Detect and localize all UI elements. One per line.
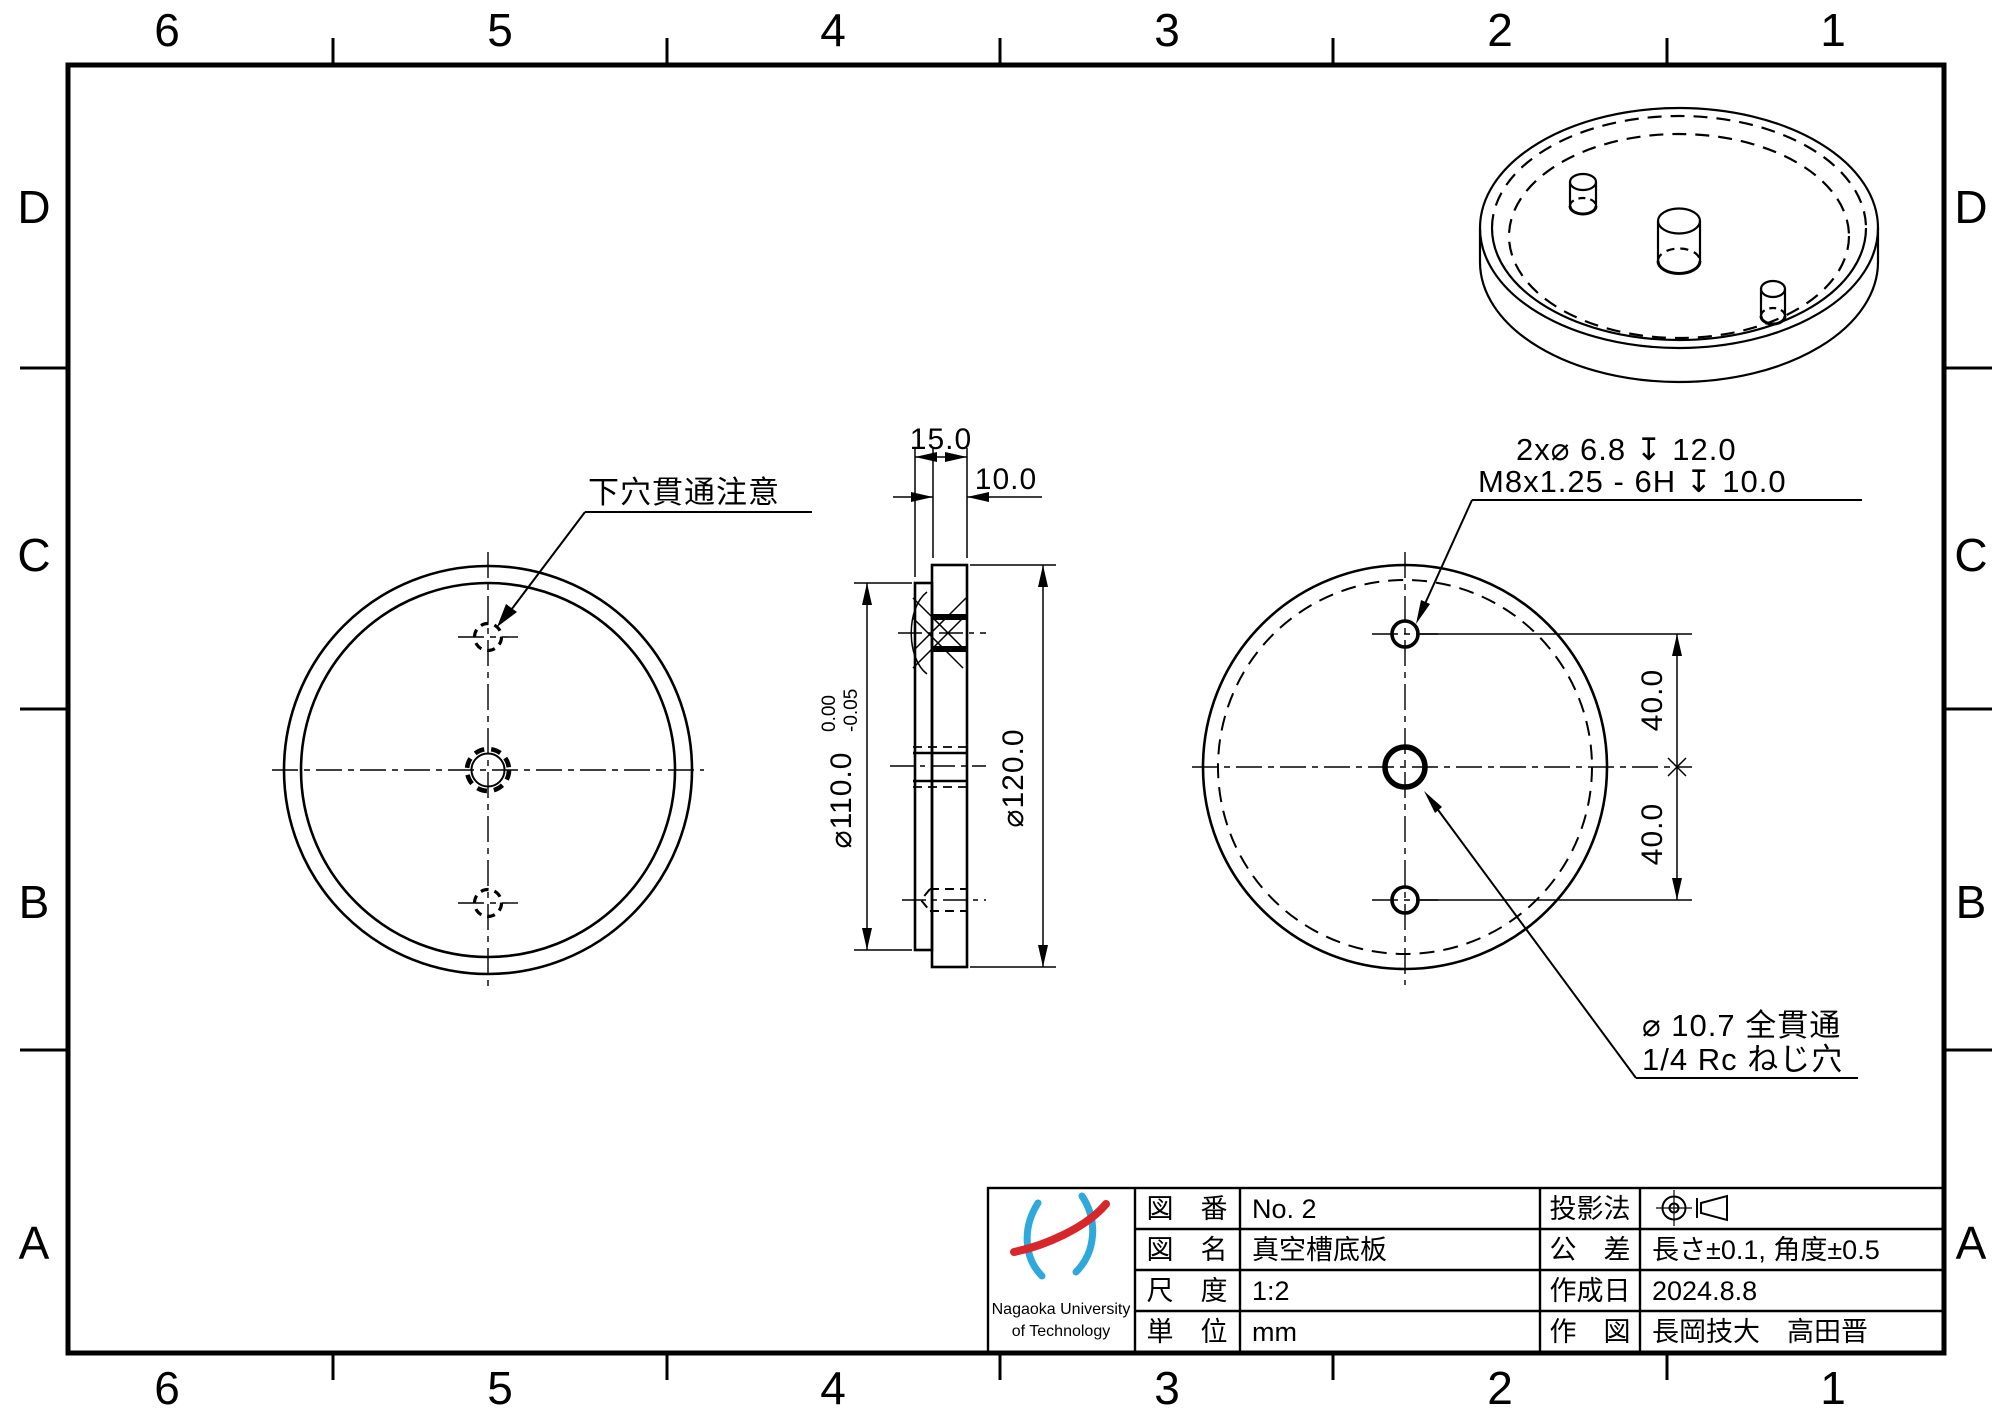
dim-plate-thickness: 10.0 [975, 463, 1037, 496]
date-value: 2024.8.8 [1652, 1276, 1757, 1306]
dim-total-thickness: 15.0 [910, 423, 972, 456]
tapped-hole-note-line2: M8x1.25 - 6H ↧ 10.0 [1478, 464, 1787, 499]
projection-symbol [1656, 1190, 1727, 1226]
right-view [1192, 500, 1862, 1078]
centerlines [1192, 552, 1692, 985]
zone-col-top: 5 [487, 4, 513, 56]
zone-col-top: 2 [1487, 4, 1513, 56]
iso-bottom-edge [1480, 262, 1878, 382]
logo-blue-stroke-left [1027, 1203, 1042, 1276]
drawing-name-value: 真空槽底板 [1252, 1235, 1387, 1265]
leader-arrowhead [1416, 600, 1430, 624]
dim-boss-dia: ⌀110.0 [825, 752, 858, 849]
tolerance-label: 公 差 [1550, 1235, 1631, 1265]
engineering-drawing-sheet: 6 5 4 3 2 1 6 5 4 3 2 1 D C B A D C B A [0, 0, 2000, 1414]
zone-col-bottom: 4 [820, 1362, 846, 1414]
university-logo [1014, 1196, 1106, 1276]
dim-hole-pitch-upper: 40.0 [1636, 669, 1669, 731]
iso-hole-cylinder-upper [1570, 174, 1596, 214]
boss-diameter-circle [301, 583, 675, 957]
zone-row-right: A [1956, 1217, 1987, 1269]
dim-boss-dia-group: ⌀110.0 0.00 -0.05 [819, 689, 862, 849]
iso-hole-cylinder-center [1658, 209, 1700, 274]
zone-col-bottom: 1 [1820, 1362, 1846, 1414]
drawn-by-label: 作 図 [1550, 1317, 1631, 1347]
dim-outer-dia: ⌀120.0 [997, 728, 1030, 827]
side-centerlines [890, 633, 986, 900]
zone-row-left: B [19, 876, 50, 928]
scale-value: 1:2 [1252, 1276, 1290, 1306]
iso-inner-hidden-edge [1509, 134, 1849, 338]
dim-boss-tol-upper: 0.00 [819, 695, 840, 732]
zone-col-top: 4 [820, 4, 846, 56]
leader-arrowhead [1424, 791, 1442, 813]
logo-text-line2: of Technology [1012, 1323, 1110, 1340]
zone-row-right: C [1954, 529, 1987, 581]
center-hole-note-line2: 1/4 Rc ねじ穴 [1642, 1042, 1843, 1077]
projection-label: 投影法 [1550, 1194, 1631, 1224]
zone-ticks [20, 38, 1992, 1380]
side-view [854, 448, 1056, 967]
dim-hole-pitch-lower: 40.0 [1636, 803, 1669, 865]
zone-col-top: 6 [154, 4, 180, 56]
tolerance-value: 長さ±0.1, 角度±0.5 [1652, 1235, 1880, 1265]
zone-row-left: A [19, 1217, 50, 1269]
tapped-hole-leader [1419, 500, 1862, 617]
zone-col-bottom: 6 [154, 1362, 180, 1414]
logo-blue-stroke-right [1076, 1196, 1093, 1272]
front-view [272, 512, 812, 988]
drawing-no-label: 図 番 [1147, 1194, 1228, 1224]
zone-col-top: 3 [1154, 4, 1180, 56]
zone-col-bottom: 5 [487, 1362, 513, 1414]
centerlines [272, 552, 704, 988]
zone-col-top: 1 [1820, 4, 1846, 56]
dim-boss-tol-lower: -0.05 [841, 689, 862, 732]
zone-col-bottom: 3 [1154, 1362, 1180, 1414]
zone-labels: 6 5 4 3 2 1 6 5 4 3 2 1 D C B A D C B A [17, 4, 1987, 1414]
isometric-view [1480, 108, 1878, 382]
tapped-hole-note-line1: 2x⌀ 6.8 ↧ 12.0 [1516, 432, 1737, 467]
zone-row-right: B [1956, 876, 1987, 928]
unit-label: 単 位 [1147, 1317, 1228, 1347]
iso-top-outer-edge [1480, 108, 1878, 348]
date-label: 作成日 [1550, 1276, 1631, 1306]
pilot-hole-note: 下穴貫通注意 [588, 475, 780, 510]
zone-row-right: D [1954, 181, 1987, 233]
center-hole-section [913, 747, 968, 787]
scale-label: 尺 度 [1147, 1276, 1228, 1306]
iso-step-front [1492, 228, 1866, 340]
iso-hole-cylinder-lower [1761, 281, 1785, 324]
drawing-name-label: 図 名 [1147, 1235, 1228, 1265]
drawn-by-value: 長岡技大 高田晋 [1652, 1317, 1868, 1347]
pilot-hole-leader [502, 512, 812, 622]
zone-row-left: D [17, 181, 50, 233]
logo-text-line1: Nagaoka University [992, 1301, 1131, 1318]
unit-value: mm [1252, 1317, 1297, 1347]
zone-row-left: C [17, 529, 50, 581]
dim-arrowheads [862, 452, 1048, 967]
border-frame [20, 38, 1992, 1380]
zone-col-bottom: 2 [1487, 1362, 1513, 1414]
drawing-no-value: No. 2 [1252, 1194, 1317, 1224]
center-hole-note-line1: ⌀ 10.7 全貫通 [1642, 1008, 1841, 1043]
